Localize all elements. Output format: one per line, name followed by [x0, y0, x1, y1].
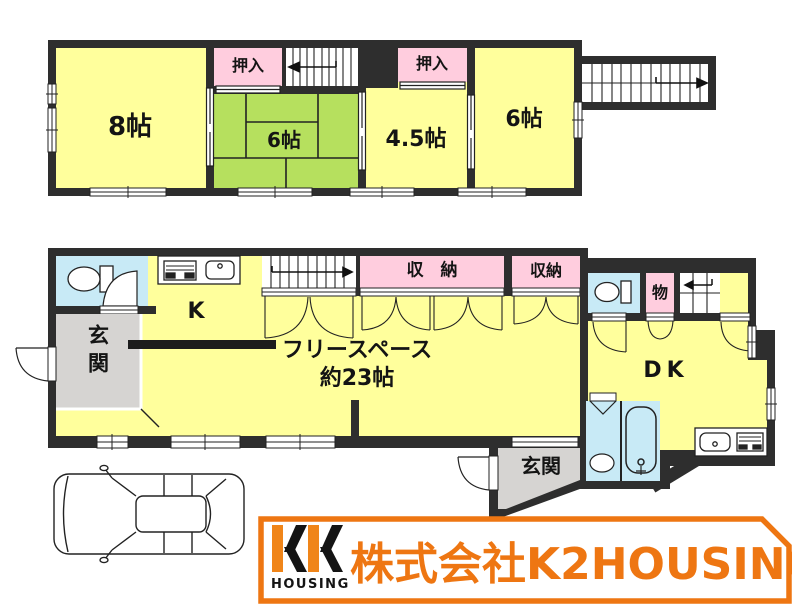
- label-room-8jo: 8帖: [108, 114, 152, 140]
- label-kitchen: K: [187, 301, 204, 323]
- kitchen-counter-bar: [128, 340, 276, 349]
- label-storage-b: 収納: [530, 263, 562, 279]
- label-free-space-2: 約23帖: [320, 368, 395, 390]
- kk-logo-icon: HOUSING: [270, 525, 348, 593]
- kitchen-counter-icon: [158, 256, 240, 284]
- label-room-6jo: 6帖: [505, 109, 542, 131]
- floorplan-page: 8帖 押入 6帖 押入 4.5帖 6帖 玄関 K フリースペース 約23帖 収 …: [0, 0, 792, 608]
- entry-door-2: [458, 457, 489, 490]
- label-entry-1: 玄関: [87, 324, 108, 380]
- label-closet-a: 押入: [232, 58, 264, 74]
- label-free-space-1: フリースペース: [282, 340, 432, 362]
- dk-kitchen-counter-icon: [695, 428, 767, 456]
- label-storage-a: 収 納: [407, 263, 458, 280]
- label-dk: DK: [643, 360, 688, 382]
- company-name: 株式会社K2HOUSING: [350, 528, 792, 592]
- washbasin-icon: [590, 454, 614, 472]
- logo-housing-text: HOUSING: [271, 577, 348, 592]
- label-mono: 物: [652, 285, 668, 301]
- car-top-view: [54, 465, 244, 562]
- company-logo-bar: HOUSING 株式会社K2HOUSING: [258, 516, 792, 604]
- toilet-icon-1: [68, 266, 113, 292]
- label-entry-2: 玄関: [521, 456, 561, 476]
- label-closet-b: 押入: [416, 56, 448, 72]
- entry-door-1: [16, 348, 48, 381]
- label-room-6jo-tatami: 6帖: [267, 130, 301, 150]
- label-room-4-5jo: 4.5帖: [386, 129, 447, 151]
- toilet-icon-2: [595, 281, 631, 303]
